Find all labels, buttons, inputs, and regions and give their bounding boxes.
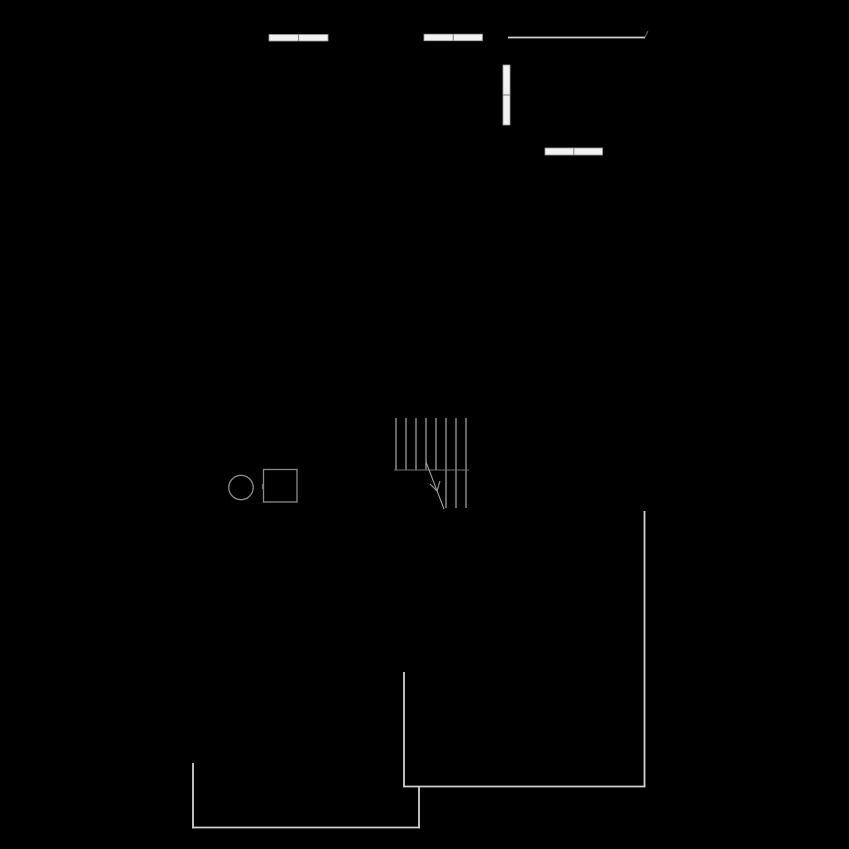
floor-plan-canvas <box>0 0 849 849</box>
canvas-background <box>0 0 849 849</box>
floor-plan-viewport <box>0 0 849 849</box>
